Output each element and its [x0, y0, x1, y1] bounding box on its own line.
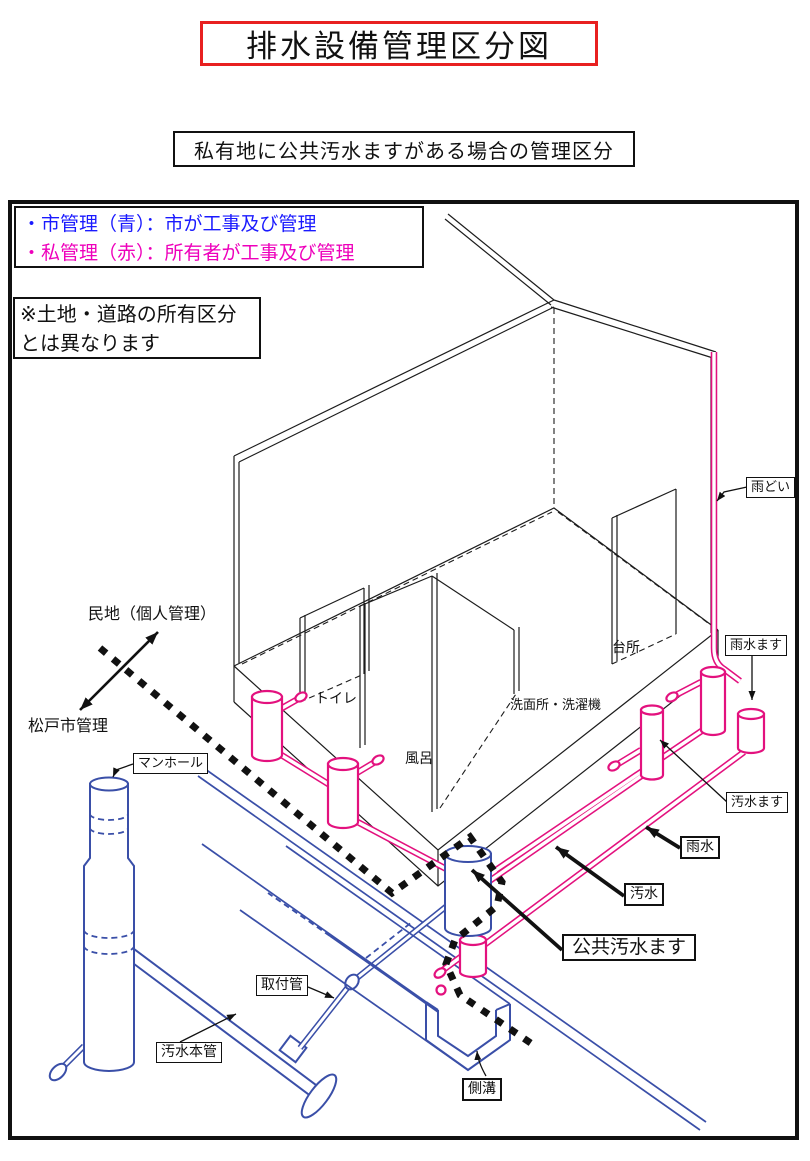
callout-rainwater-basin: 雨水ます [725, 635, 787, 656]
room-washroom: 洗面所・洗濯機 [510, 694, 601, 713]
label-city-managed-area: 松戸市管理 [28, 712, 108, 736]
room-bath: 風呂 [405, 748, 433, 768]
callout-public-sewage-basin: 公共汚水ます [562, 934, 696, 961]
callout-rain-gutter: 雨どい [746, 477, 795, 498]
callout-sewer-main: 汚水本管 [156, 1042, 222, 1063]
legend-private-managed: ・私管理（赤）：所有者が工事及び管理 [22, 239, 416, 268]
note-line2: とは異なります [20, 329, 254, 358]
page-subtitle: 私有地に公共汚水ますがある場合の管理区分 [173, 131, 635, 167]
legend: ・市管理（青）：市が工事及び管理 ・私管理（赤）：所有者が工事及び管理 [14, 206, 424, 268]
page: 排水設備管理区分図 私有地に公共汚水ますがある場合の管理区分 ・市管理（青）：市… [0, 0, 810, 1161]
room-toilet: トイレ [315, 688, 357, 708]
label-private-land: 民地（個人管理） [88, 600, 216, 624]
callout-connection-pipe: 取付管 [256, 975, 308, 996]
callout-sewage: 汚水 [624, 883, 664, 906]
callout-sewage-basin: 汚水ます [726, 792, 788, 813]
callout-roadside-gutter: 側溝 [462, 1078, 502, 1101]
page-title: 排水設備管理区分図 [200, 21, 598, 66]
note-line1: ※土地・道路の所有区分 [20, 300, 254, 329]
room-kitchen: 台所 [612, 637, 640, 657]
callout-rainwater: 雨水 [680, 836, 720, 859]
ownership-note: ※土地・道路の所有区分 とは異なります [13, 297, 261, 359]
legend-city-managed: ・市管理（青）：市が工事及び管理 [22, 210, 416, 239]
callout-manhole: マンホール [133, 753, 208, 774]
